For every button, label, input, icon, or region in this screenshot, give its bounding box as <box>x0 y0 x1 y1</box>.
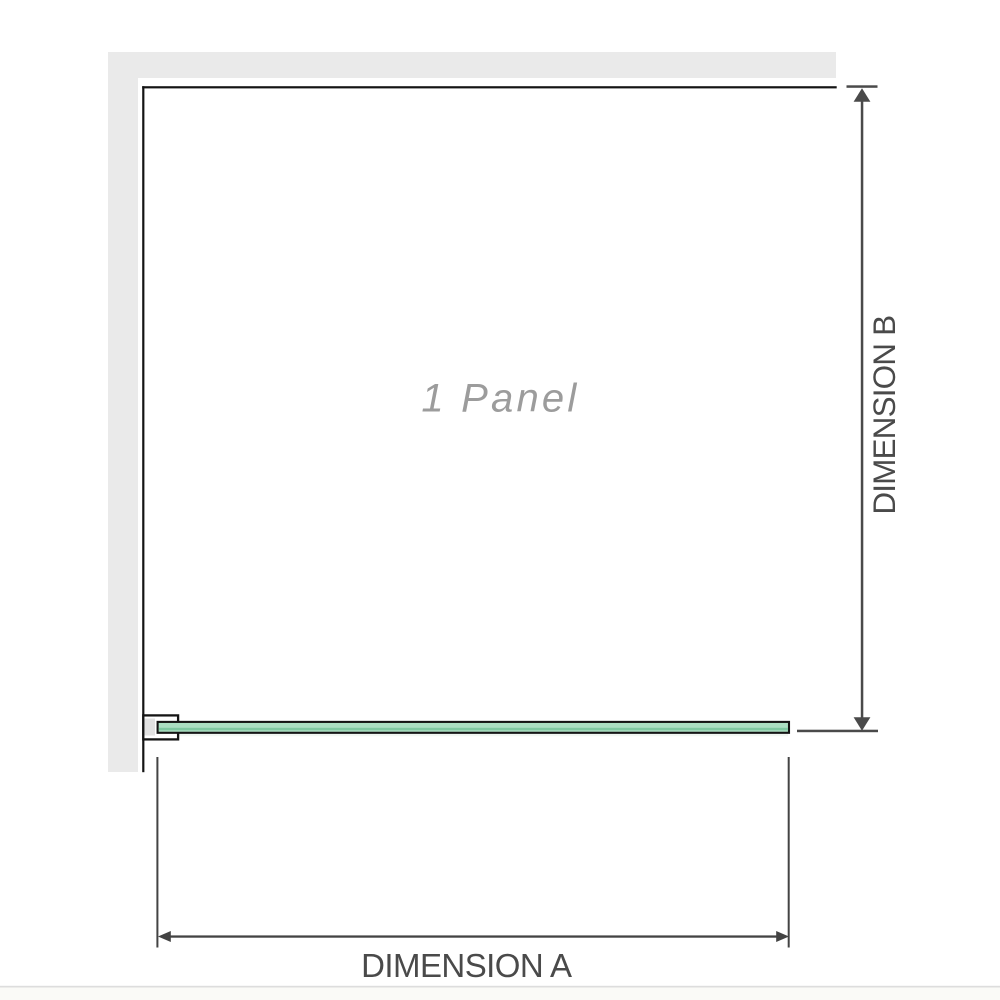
svg-text:DIMENSION A: DIMENSION A <box>361 947 572 984</box>
svg-text:DIMENSION B: DIMENSION B <box>866 316 902 515</box>
svg-text:1 Panel: 1 Panel <box>421 377 579 421</box>
